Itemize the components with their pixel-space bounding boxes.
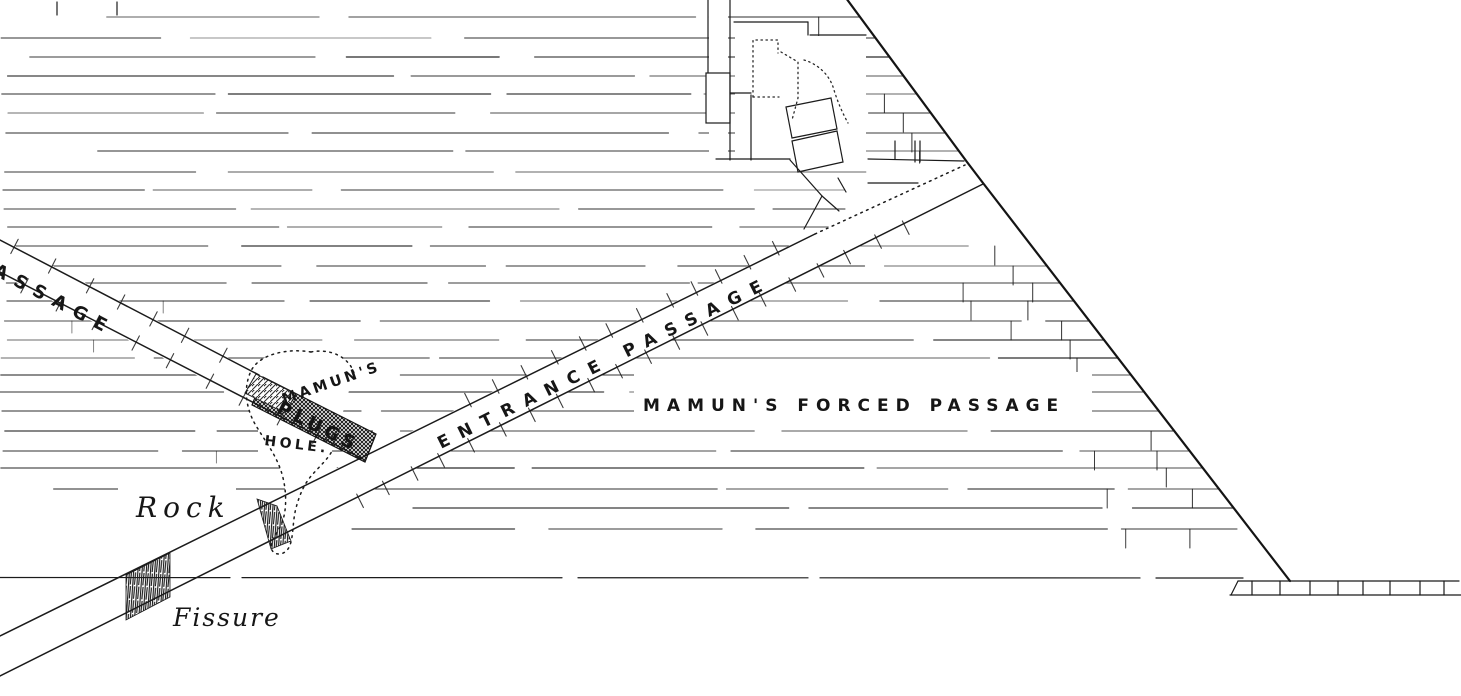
entrance-ledge-line	[868, 159, 964, 161]
base-rock-line	[0, 578, 1243, 579]
mamuns-forced-passage-label: MAMUN'S FORCED PASSAGE	[643, 396, 1065, 416]
exterior-sky-mask	[846, 0, 1461, 581]
entrance-passage-label: ENTRANCE PASSAGE	[434, 272, 775, 453]
diagram-canvas: ASSAGE ENTRANCE PASSAGE MAMUN'S PLUGS HO…	[0, 0, 1461, 696]
entrance-passage-ceiling-line	[0, 234, 815, 636]
ascending-passage-upper-wall	[0, 240, 259, 375]
pavement-course	[1230, 581, 1461, 595]
fissure-label: Fissure	[172, 603, 281, 632]
pyramid-entrance-cross-section-diagram: ASSAGE ENTRANCE PASSAGE MAMUN'S PLUGS HO…	[0, 0, 1461, 696]
rock-label: Rock	[135, 491, 231, 524]
